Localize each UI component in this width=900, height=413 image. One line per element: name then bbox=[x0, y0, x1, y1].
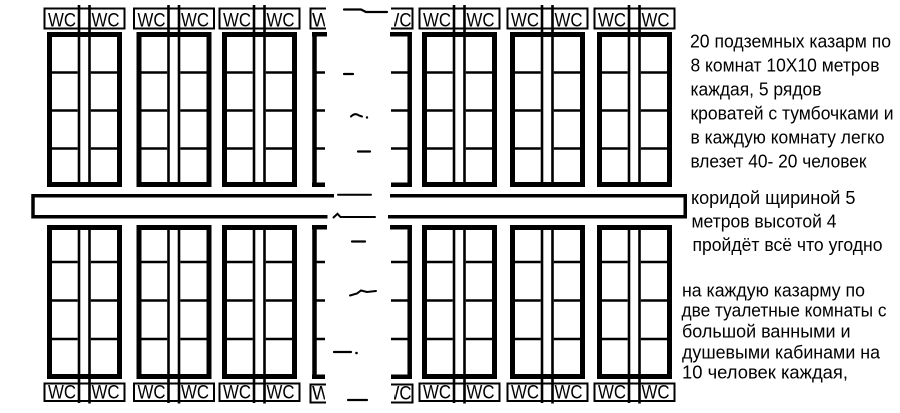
svg-text:8 комнат 10X10 метров: 8 комнат 10X10 метров bbox=[691, 55, 880, 76]
svg-text:WC: WC bbox=[384, 384, 412, 405]
svg-text:пройдёт всё что угодно: пройдёт всё что угодно bbox=[693, 234, 883, 255]
svg-text:на каждую казарму по: на каждую казарму по bbox=[682, 280, 865, 301]
svg-text:метров высотой 4: метров высотой 4 bbox=[692, 211, 837, 232]
svg-text:большой ванными и: большой ванными и bbox=[682, 321, 851, 342]
svg-text:коридой щириной 5: коридой щириной 5 bbox=[691, 187, 856, 208]
svg-text:каждая, 5 рядов: каждая, 5 рядов bbox=[691, 79, 822, 100]
svg-text:WC: WC bbox=[384, 11, 412, 32]
svg-text:душевыми кабинами на: душевыми кабинами на bbox=[682, 342, 881, 363]
svg-text:влезет 40- 20 человек: влезет 40- 20 человек bbox=[691, 151, 868, 172]
svg-text:W: W bbox=[312, 11, 330, 32]
svg-text:кроватей с тумбочками и: кроватей с тумбочками и bbox=[691, 103, 894, 124]
svg-text:W: W bbox=[312, 384, 330, 405]
svg-text:10 человек каждая,: 10 человек каждая, bbox=[682, 362, 848, 383]
svg-text:в каждую комнату легко: в каждую комнату легко bbox=[691, 127, 885, 148]
svg-text:две туалетные комнаты с: две туалетные комнаты с bbox=[682, 300, 887, 321]
svg-text:20 подземных казарм по: 20 подземных казарм по bbox=[690, 31, 891, 52]
